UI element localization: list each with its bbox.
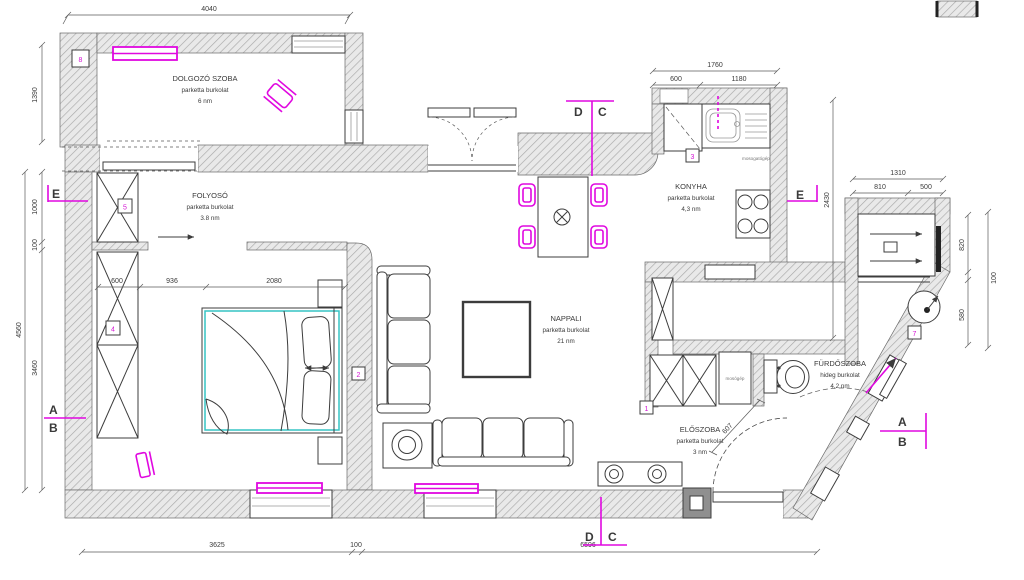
wall-bottom-c	[496, 490, 683, 518]
boiler-icon	[908, 291, 940, 323]
svg-text:820: 820	[959, 239, 966, 251]
svg-text:4560: 4560	[16, 322, 23, 338]
french-door	[428, 108, 518, 172]
svg-text:3: 3	[691, 154, 695, 161]
svg-text:1: 1	[645, 406, 649, 413]
column	[683, 488, 711, 518]
hall-closet-icon-1	[650, 355, 683, 406]
room-floor: parketta burkolat	[187, 204, 234, 211]
svg-text:810: 810	[874, 184, 886, 191]
wardrobe-bedroom-icon-2	[97, 345, 138, 438]
svg-text:7: 7	[913, 331, 917, 338]
chair-icon-dolgozo	[264, 80, 297, 112]
dishwasher-label: mosogatógép	[742, 156, 770, 161]
washer-label: mosógép	[726, 376, 745, 381]
item-marker-5: 5	[118, 199, 132, 213]
dim-left: 1390 1000 100 3460 4560	[16, 42, 45, 493]
svg-text:8: 8	[79, 57, 83, 64]
svg-text:2430: 2430	[824, 192, 831, 208]
stove-icon	[736, 190, 770, 238]
dining-chair-icon-1	[519, 184, 535, 206]
item-marker-7: 7	[908, 326, 921, 339]
side-table	[383, 423, 432, 468]
room-name: FÜRDŐSZOBA	[814, 359, 866, 368]
svg-text:500: 500	[920, 184, 932, 191]
svg-text:5: 5	[123, 205, 127, 212]
room-floor: parketta burkolat	[677, 438, 724, 445]
legend-swatch	[937, 1, 977, 17]
svg-text:100: 100	[32, 239, 39, 251]
dining-table	[538, 177, 588, 257]
item-marker-2: 2	[352, 367, 365, 380]
room-name: DOLGOZÓ SZOBA	[172, 74, 237, 83]
room-area: 3.8 nm	[200, 215, 219, 222]
item-marker-4: 4	[106, 321, 120, 335]
svg-text:C: C	[608, 530, 617, 544]
dining-chair-icon-3	[591, 184, 607, 206]
sofa-vertical	[377, 266, 430, 413]
room-label-konyha: KONYHA parketta burkolat 4,3 nm	[668, 182, 715, 213]
room-name: KONYHA	[675, 182, 707, 191]
svg-text:D: D	[574, 105, 583, 119]
svg-text:607: 607	[721, 422, 734, 435]
room-floor: hideg burkolat	[820, 372, 860, 379]
wall-rightwing-left	[845, 198, 858, 364]
room-label-furdoszoba: FÜRDŐSZOBA hideg burkolat 4,2 nm	[814, 359, 866, 390]
nightstand-top	[318, 280, 342, 307]
wall-kitchen-right	[770, 88, 787, 264]
svg-text:A: A	[49, 403, 58, 417]
door-track-right-wing	[936, 226, 941, 272]
pantry-cabinet-icon	[652, 278, 673, 340]
room-floor: parketta burkolat	[182, 87, 229, 94]
svg-text:3460: 3460	[32, 360, 39, 376]
svg-text:936: 936	[166, 278, 178, 285]
svg-text:1760: 1760	[707, 62, 723, 69]
item-marker-8: 8	[72, 50, 89, 67]
room-name: NAPPALI	[550, 314, 581, 323]
svg-text:600: 600	[670, 76, 682, 83]
dining-chair-icon-2	[519, 226, 535, 248]
room-label-eloszoba: ELŐSZOBA parketta burkolat 3 nm	[677, 425, 724, 456]
room-floor: parketta burkolat	[543, 327, 590, 334]
room-name: ELŐSZOBA	[680, 425, 720, 434]
coffee-table	[463, 302, 530, 377]
room-label-folyoso: FOLYOSÓ parketta burkolat 3.8 nm	[187, 191, 234, 222]
item-marker-3: 3	[686, 149, 699, 162]
section-e-right: E	[787, 185, 817, 202]
svg-text:4: 4	[111, 327, 115, 334]
window-dolgozo-right	[345, 110, 363, 143]
svg-text:1000: 1000	[32, 199, 39, 215]
svg-text:E: E	[796, 188, 804, 202]
bed	[202, 308, 342, 434]
sink-icon	[702, 96, 770, 148]
svg-text:600: 600	[111, 278, 123, 285]
svg-text:3625: 3625	[209, 542, 225, 549]
wall-bathroom-top	[673, 340, 853, 354]
sofa-horizontal	[433, 418, 573, 466]
svg-text:D: D	[585, 530, 594, 544]
room-area: 6 nm	[198, 98, 212, 105]
svg-text:1310: 1310	[890, 170, 906, 177]
toilet-icon	[764, 360, 809, 394]
room-area: 21 nm	[557, 338, 575, 345]
wall-top-band-main	[198, 145, 428, 172]
room-label-dolgozo: DOLGOZÓ SZOBA parketta burkolat 6 nm	[172, 74, 237, 105]
wall-top-band-right	[518, 133, 658, 175]
kitchen-door	[660, 89, 688, 103]
svg-text:4040: 4040	[201, 6, 217, 13]
wall-top-band-left	[65, 145, 100, 172]
svg-text:100: 100	[991, 272, 998, 284]
room-name: FOLYOSÓ	[192, 191, 228, 200]
wall-folyoso-bottom-a	[92, 242, 148, 250]
svg-text:E: E	[52, 187, 60, 201]
wall-bottom-b	[332, 490, 424, 518]
room-area: 3 nm	[693, 449, 707, 456]
svg-text:B: B	[898, 435, 907, 449]
item-marker-1: 1	[640, 401, 653, 414]
dim-top: 4040	[63, 6, 353, 24]
floor-plan-page: mosógép	[0, 0, 1024, 580]
washing-machine: mosógép	[719, 352, 751, 404]
dining-chair-icon-4	[591, 226, 607, 248]
floor-plan-drawing: mosógép	[0, 0, 1024, 580]
svg-text:2: 2	[357, 372, 361, 379]
svg-text:A: A	[898, 415, 907, 429]
window-bottom-1	[250, 490, 332, 518]
svg-text:B: B	[49, 421, 58, 435]
corner-cabinet	[664, 104, 702, 151]
storage-room	[858, 214, 935, 282]
room-area: 4,3 nm	[681, 206, 700, 213]
svg-text:1180: 1180	[731, 76, 746, 83]
bench	[598, 462, 682, 486]
nightstand-bottom	[318, 437, 342, 464]
hall-closet-icon-2	[683, 355, 716, 406]
wall-folyoso-bottom-b	[247, 242, 347, 250]
wall-rightwing-top	[845, 198, 950, 214]
svg-text:100: 100	[350, 542, 362, 549]
section-ab-right: A B	[880, 413, 926, 449]
room-area: 4,2 nm	[830, 383, 849, 390]
room-label-nappali: NAPPALI parketta burkolat 21 nm	[543, 314, 590, 345]
svg-text:1390: 1390	[32, 87, 39, 103]
serving-hatch	[705, 265, 755, 279]
svg-text:2080: 2080	[266, 278, 282, 285]
wall-bottom-a	[65, 490, 250, 518]
wall-left-main	[65, 172, 92, 490]
chair-icon-bedroom	[136, 451, 155, 477]
wall-bathroom-stub	[753, 354, 764, 406]
wall-kitchen-left-stub	[652, 104, 664, 154]
room-floor: parketta burkolat	[668, 195, 715, 202]
svg-text:580: 580	[959, 309, 966, 321]
window-bottom-2	[424, 490, 496, 518]
svg-text:C: C	[598, 105, 607, 119]
dim-bottom: 3625 100 6596	[79, 542, 820, 555]
window-dolgozo-top	[292, 36, 345, 53]
